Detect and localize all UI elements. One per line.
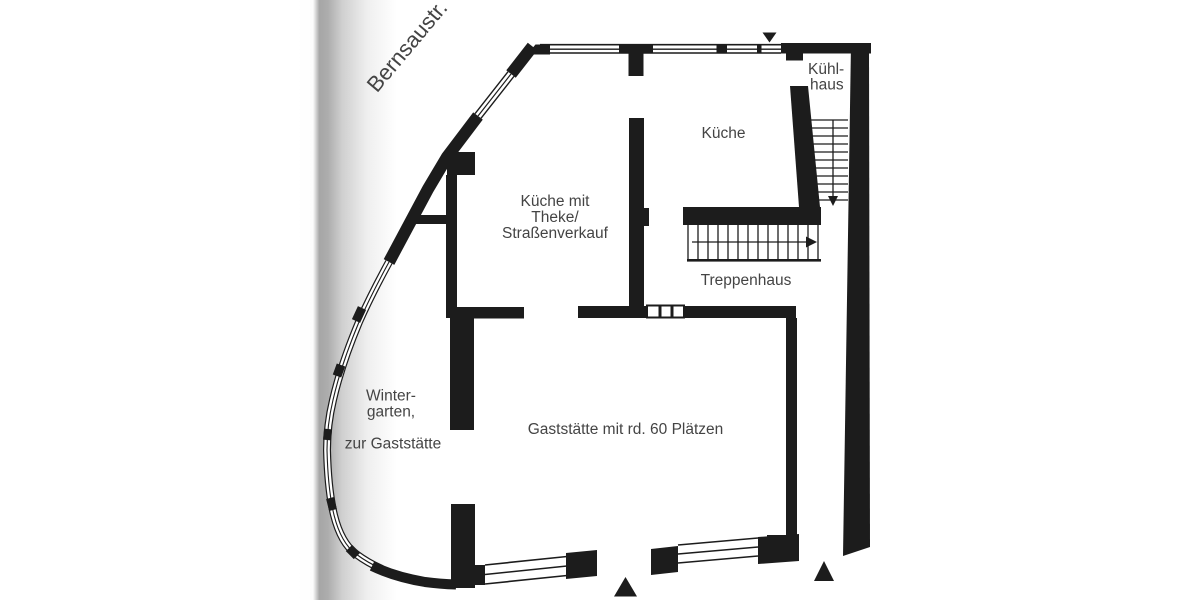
svg-text:Küche: Küche: [702, 125, 746, 142]
svg-text:Gaststätte mit rd. 60 Plätzen: Gaststätte mit rd. 60 Plätzen: [528, 421, 724, 438]
svg-text:haus: haus: [810, 77, 844, 94]
svg-text:Kühl-: Kühl-: [808, 61, 844, 78]
svg-text:Küche mit: Küche mit: [521, 193, 591, 210]
svg-text:Treppenhaus: Treppenhaus: [701, 272, 792, 289]
svg-text:Theke/: Theke/: [531, 209, 579, 226]
svg-text:garten,: garten,: [367, 404, 415, 421]
svg-text:zur Gaststätte: zur Gaststätte: [345, 436, 441, 453]
svg-text:Straßenverkauf: Straßenverkauf: [502, 225, 609, 242]
svg-text:Winter-: Winter-: [366, 388, 416, 405]
